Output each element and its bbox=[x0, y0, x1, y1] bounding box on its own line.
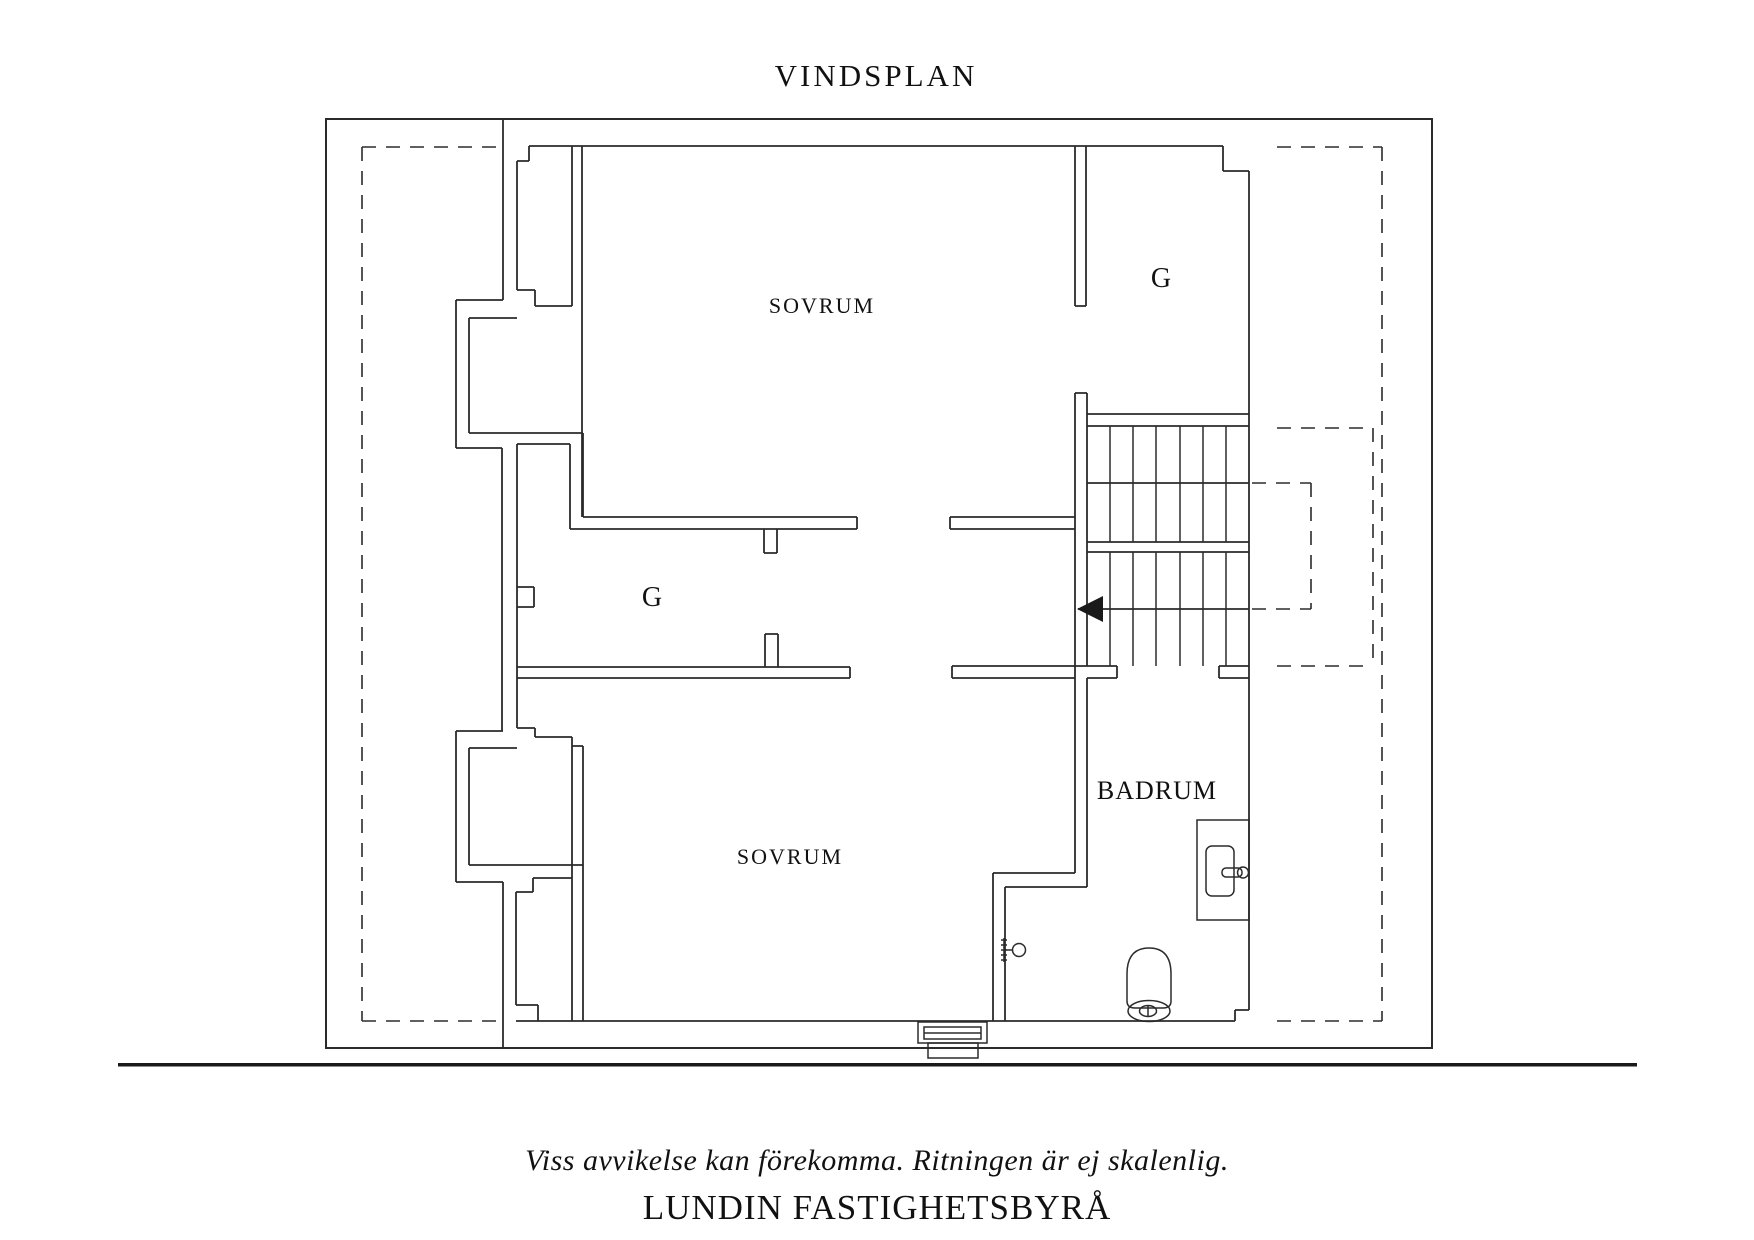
interior-walls-left bbox=[456, 119, 583, 1048]
room-label-sovrum-top: SOVRUM bbox=[769, 293, 875, 318]
sink-icon bbox=[1197, 820, 1249, 920]
closet-unit-top-left bbox=[517, 146, 572, 306]
window-symbol bbox=[918, 1022, 987, 1058]
floor-plan-page: VINDSPLAN bbox=[0, 0, 1754, 1240]
floor-plan-drawing: VINDSPLAN bbox=[0, 0, 1754, 1240]
ceiling-height-dashed-lines bbox=[362, 147, 1382, 1021]
interior-walls-top-right bbox=[529, 146, 1249, 1010]
toilet-icon bbox=[1127, 948, 1171, 1022]
room-label-closet-left: G bbox=[642, 582, 662, 613]
stair-treads bbox=[1110, 426, 1226, 666]
room-label-sovrum-bottom: SOVRUM bbox=[737, 844, 843, 869]
room-label-closet-top-right: G bbox=[1151, 263, 1171, 294]
disclaimer-text: Viss avvikelse kan förekomma. Ritningen … bbox=[525, 1144, 1229, 1177]
closet-unit-bottom-left bbox=[516, 728, 583, 1021]
bathroom-walls bbox=[516, 666, 1249, 1021]
stair-direction-arrow bbox=[1077, 596, 1103, 622]
door-handle-icon bbox=[1001, 938, 1026, 962]
page-title: VINDSPLAN bbox=[775, 58, 978, 93]
brand-name: LUNDIN FASTIGHETSBYRÅ bbox=[643, 1188, 1112, 1227]
outer-walls bbox=[326, 119, 1432, 1048]
footer-divider bbox=[118, 1063, 1637, 1067]
room-label-badrum: BADRUM bbox=[1097, 776, 1217, 805]
corridor-walls bbox=[517, 517, 1075, 678]
